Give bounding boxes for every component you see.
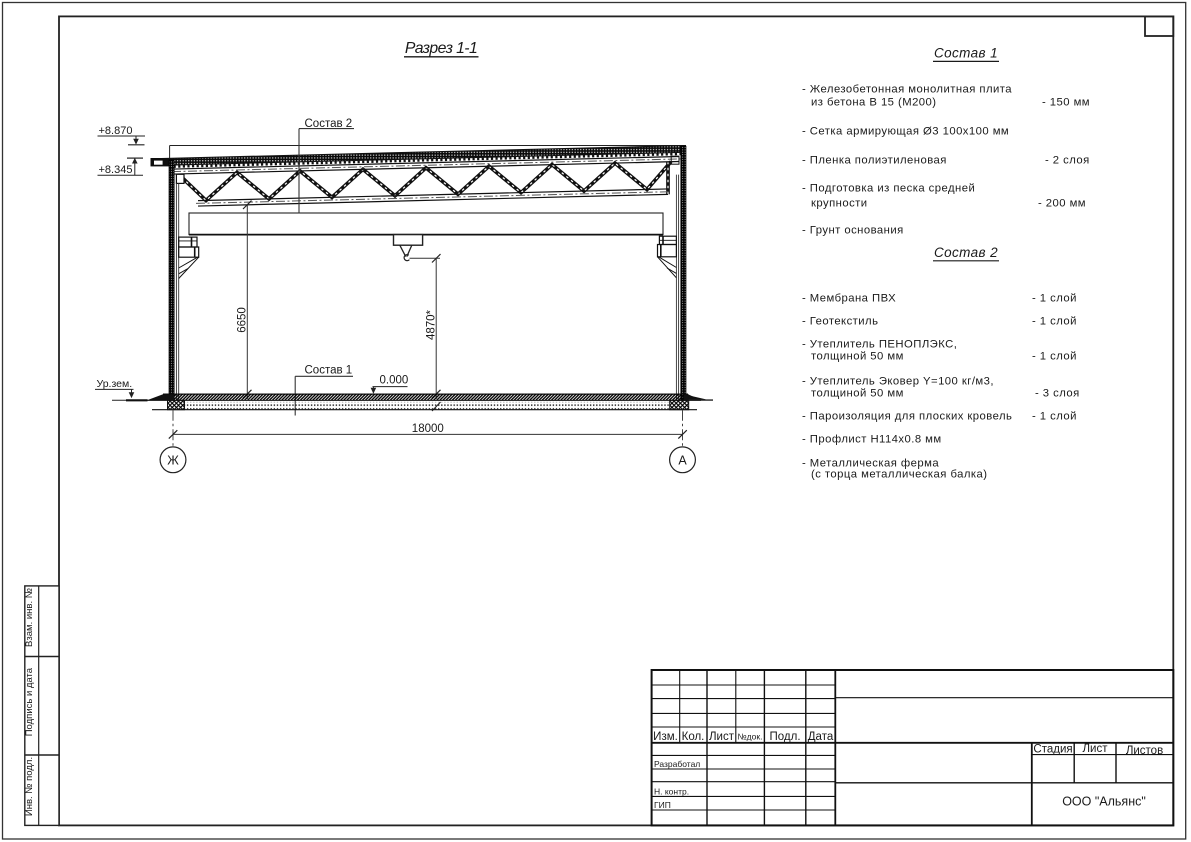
svg-text:- Мембрана ПВХ: - Мембрана ПВХ xyxy=(802,293,896,305)
svg-text:- Железобетонная монолитная п: - Железобетонная монолитная плита xyxy=(802,84,1012,96)
svg-text:толщиной 50 мм: толщиной 50 мм xyxy=(811,388,904,400)
svg-text:6650: 6650 xyxy=(237,307,249,333)
svg-text:Ур.зем.: Ур.зем. xyxy=(97,378,133,390)
svg-text:Стадия: Стадия xyxy=(1033,744,1072,756)
svg-text:Разрез 1-1: Разрез 1-1 xyxy=(405,40,477,57)
svg-text:из бетона В 15 (М200): из бетона В 15 (М200) xyxy=(811,97,936,109)
svg-text:Подпись и дата: Подпись и дата xyxy=(24,667,35,736)
svg-text:А: А xyxy=(678,453,687,467)
svg-text:Н. контр.: Н. контр. xyxy=(654,786,689,796)
svg-text:№док.: №док. xyxy=(738,732,763,742)
svg-text:18000: 18000 xyxy=(412,423,444,435)
svg-text:- Утеплитель ПЕНОПЛЭКС,: - Утеплитель ПЕНОПЛЭКС, xyxy=(802,339,957,351)
svg-text:- Подготовка из песка средней: - Подготовка из песка средней xyxy=(802,183,975,195)
svg-text:- Профлист Н114х0.8 мм: - Профлист Н114х0.8 мм xyxy=(802,434,942,446)
svg-text:Состав 2: Состав 2 xyxy=(305,118,353,130)
svg-text:- Сетка армирующая Ø3 100х100: - Сетка армирующая Ø3 100х100 мм xyxy=(802,126,1009,138)
svg-text:- 1 слой: - 1 слой xyxy=(1032,316,1077,328)
svg-text:- 150 мм: - 150 мм xyxy=(1042,97,1090,109)
svg-text:- 200 мм: - 200 мм xyxy=(1038,198,1086,210)
svg-text:Ж: Ж xyxy=(167,453,179,467)
svg-text:- 1 слой: - 1 слой xyxy=(1032,293,1077,305)
svg-text:Листов: Листов xyxy=(1126,745,1163,757)
svg-text:Изм.: Изм. xyxy=(653,731,678,743)
svg-text:- 1 слой: - 1 слой xyxy=(1032,411,1077,423)
svg-text:- Геотекстиль: - Геотекстиль xyxy=(802,316,878,328)
svg-text:Состав 1: Состав 1 xyxy=(934,46,998,61)
svg-text:- Пленка полиэтиленовая: - Пленка полиэтиленовая xyxy=(802,155,947,167)
svg-text:ГИП: ГИП xyxy=(654,800,671,810)
svg-text:Состав 1: Состав 1 xyxy=(305,365,353,377)
svg-text:4870*: 4870* xyxy=(426,309,438,340)
svg-text:- 2 слоя: - 2 слоя xyxy=(1045,155,1090,167)
svg-text:0.000: 0.000 xyxy=(380,375,409,387)
svg-text:крупности: крупности xyxy=(811,198,868,210)
svg-text:Лист: Лист xyxy=(1083,743,1109,755)
svg-text:+8.870: +8.870 xyxy=(99,125,133,137)
svg-text:Дата: Дата xyxy=(808,731,834,743)
svg-text:- 1 слой: - 1 слой xyxy=(1032,351,1077,363)
svg-text:- Пароизоляция для плоских кро: - Пароизоляция для плоских кровель xyxy=(802,411,1012,423)
svg-text:Разработал: Разработал xyxy=(654,759,700,769)
svg-text:ООО "Альянс": ООО "Альянс" xyxy=(1062,795,1146,809)
svg-text:толщиной 50 мм: толщиной 50 мм xyxy=(811,351,904,363)
svg-text:Лист: Лист xyxy=(709,731,735,743)
svg-text:+8.345: +8.345 xyxy=(99,164,133,176)
svg-text:Подл.: Подл. xyxy=(769,731,800,743)
svg-text:Взам. инв. №: Взам. инв. № xyxy=(24,588,35,647)
svg-text:(с торца металлическая балка): (с торца металлическая балка) xyxy=(811,469,987,481)
svg-text:Состав 2: Состав 2 xyxy=(934,245,998,260)
svg-text:Кол.: Кол. xyxy=(682,731,705,743)
svg-text:- Грунт основания: - Грунт основания xyxy=(802,225,904,237)
svg-text:- 3 слоя: - 3 слоя xyxy=(1035,388,1080,400)
svg-text:- Утеплитель Эковер Y=100 кг/м: - Утеплитель Эковер Y=100 кг/м3, xyxy=(802,376,994,388)
svg-text:Инв. № подл.: Инв. № подл. xyxy=(24,757,35,816)
